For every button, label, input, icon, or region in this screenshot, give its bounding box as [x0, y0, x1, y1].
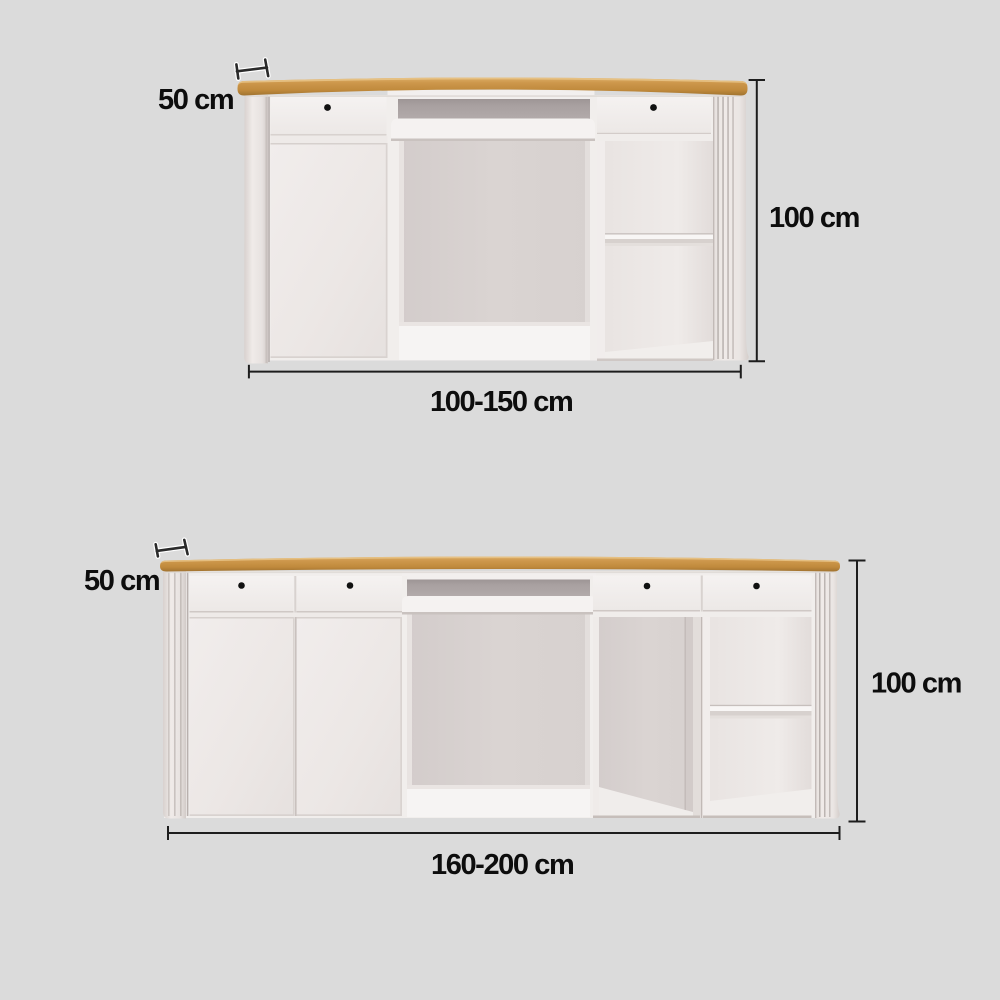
- svg-text:100 cm: 100 cm: [769, 202, 859, 234]
- svg-text:50 cm: 50 cm: [84, 565, 159, 597]
- svg-text:50 cm: 50 cm: [158, 84, 233, 116]
- svg-text:160-200 cm: 160-200 cm: [431, 849, 573, 881]
- svg-text:100-150 cm: 100-150 cm: [430, 386, 572, 418]
- svg-text:100 cm: 100 cm: [871, 668, 961, 700]
